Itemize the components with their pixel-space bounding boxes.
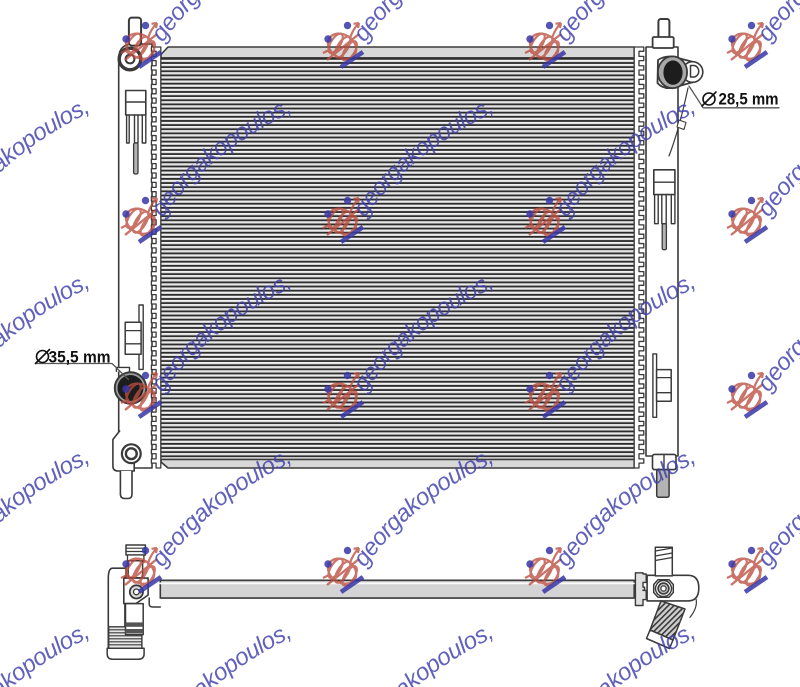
svg-text:35,5 mm: 35,5 mm [49, 348, 111, 367]
svg-text:28,5 mm: 28,5 mm [719, 90, 779, 109]
